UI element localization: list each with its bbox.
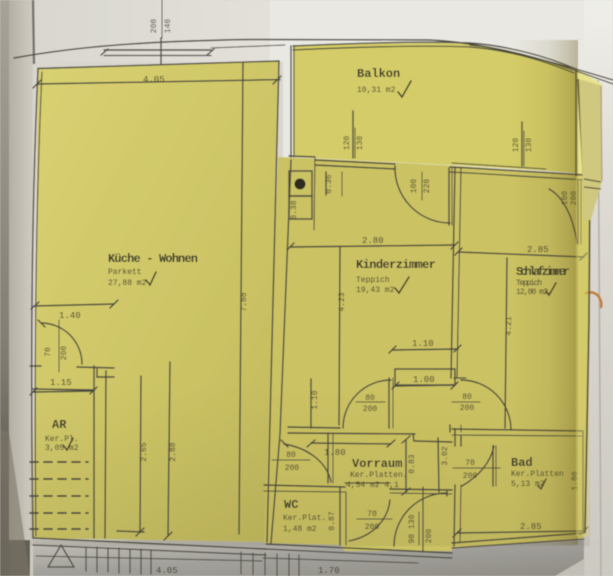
svg-text:1.40: 1.40 xyxy=(59,311,81,321)
svg-text:Küche - Wohnen: Küche - Wohnen xyxy=(108,252,198,266)
svg-text:0.38: 0.38 xyxy=(290,200,299,219)
svg-text:Balkon: Balkon xyxy=(357,67,400,81)
svg-text:130: 130 xyxy=(356,136,365,151)
svg-text:Kinderzimmer: Kinderzimmer xyxy=(356,258,436,272)
svg-text:Teppich: Teppich xyxy=(356,276,390,285)
svg-text:200: 200 xyxy=(150,19,159,34)
svg-text:140: 140 xyxy=(164,19,173,34)
svg-text:1.10: 1.10 xyxy=(412,339,434,349)
svg-text:2.80: 2.80 xyxy=(362,236,384,246)
svg-text:200: 200 xyxy=(60,346,69,361)
svg-text:Parkett: Parkett xyxy=(108,268,142,277)
svg-text:4.05: 4.05 xyxy=(143,75,165,85)
svg-text:4.05: 4.05 xyxy=(156,566,178,576)
svg-text:27,88 m2: 27,88 m2 xyxy=(108,279,147,288)
svg-text:70: 70 xyxy=(44,347,53,357)
svg-text:19,43 m2: 19,43 m2 xyxy=(356,286,395,295)
svg-text:1.70: 1.70 xyxy=(318,566,340,576)
svg-text:100: 100 xyxy=(410,179,419,194)
svg-text:7.88: 7.88 xyxy=(240,292,249,311)
svg-text:120: 120 xyxy=(343,136,352,151)
svg-text:10,31 m2: 10,31 m2 xyxy=(357,86,396,95)
svg-text:220: 220 xyxy=(423,179,432,194)
svg-text:0.36: 0.36 xyxy=(325,174,334,193)
svg-text:4.23: 4.23 xyxy=(338,292,347,311)
